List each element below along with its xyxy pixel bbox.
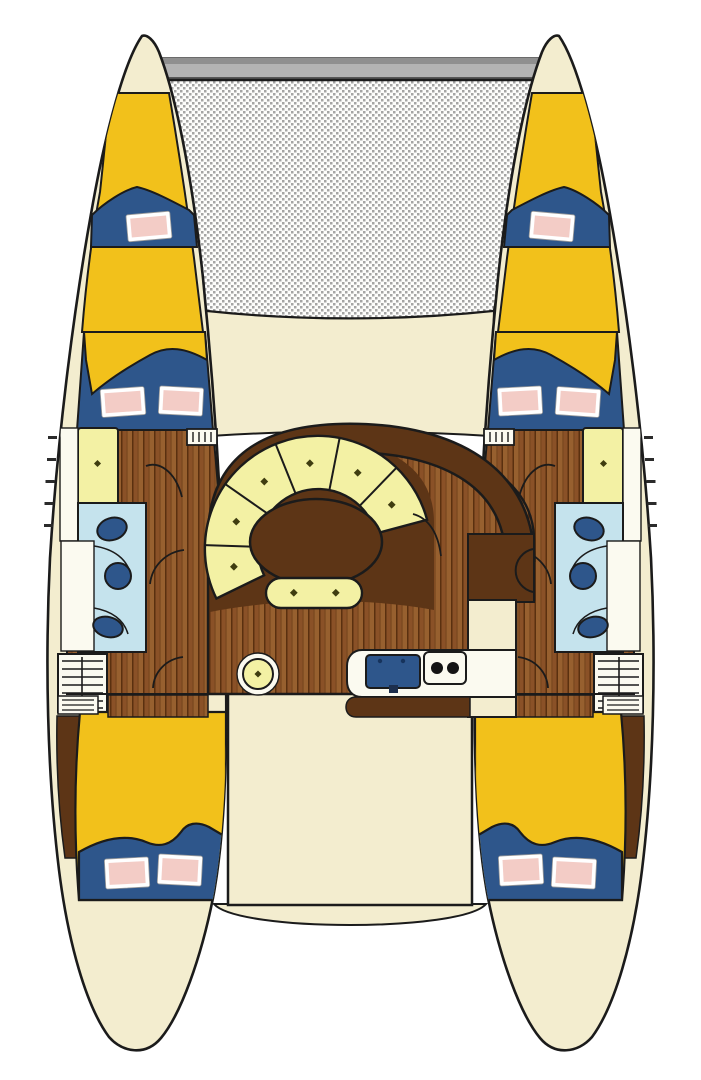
aft-walkway-floor bbox=[108, 695, 208, 717]
forward-cabin-pillow bbox=[158, 386, 203, 416]
stove-burner bbox=[431, 662, 443, 674]
sink bbox=[105, 563, 131, 589]
galley-lower-cabinet bbox=[346, 697, 470, 717]
settee-bench bbox=[266, 578, 362, 608]
aft-entry-steps bbox=[58, 696, 98, 714]
catamaran-deck-plan-page bbox=[0, 0, 701, 1080]
galley-sink bbox=[366, 655, 420, 693]
salon bbox=[205, 434, 534, 717]
aft-cabin-pillow bbox=[157, 854, 203, 886]
side-shelf bbox=[60, 428, 78, 541]
entry-steps bbox=[187, 429, 217, 445]
bow-vberth-pillow bbox=[126, 211, 172, 242]
stove-burner bbox=[447, 662, 459, 674]
trampoline-net bbox=[163, 80, 537, 319]
crossbeam bbox=[150, 58, 550, 78]
vanity-counter bbox=[61, 541, 94, 651]
footstool bbox=[237, 653, 279, 695]
dinette-table bbox=[250, 499, 382, 585]
nav-cabinet bbox=[468, 534, 534, 602]
catamaran-deck-plan bbox=[0, 0, 701, 1080]
stove bbox=[424, 652, 466, 684]
aft-cabin-pillow bbox=[104, 857, 150, 889]
foredeck bbox=[206, 311, 494, 436]
cockpit bbox=[228, 692, 472, 905]
forward-cabin-pillow bbox=[100, 386, 146, 417]
